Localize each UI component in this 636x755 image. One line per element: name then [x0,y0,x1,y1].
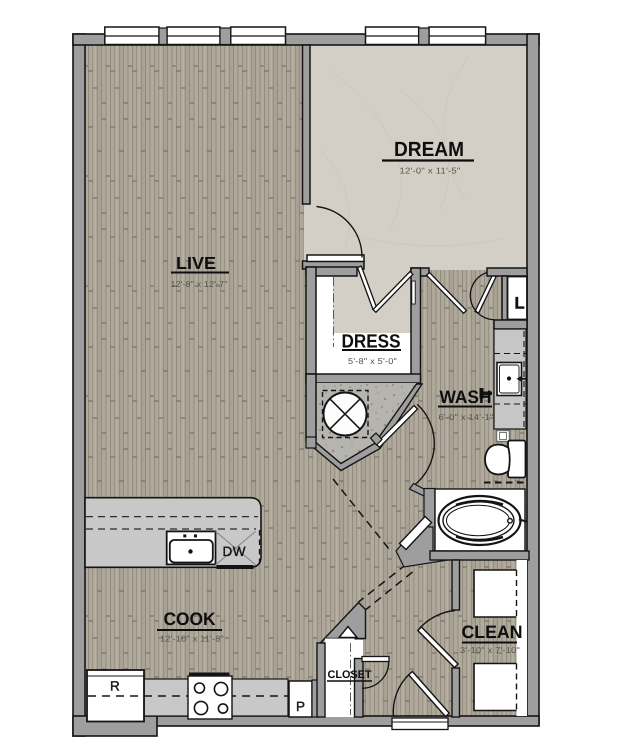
svg-text:12'-8" x 12'-7": 12'-8" x 12'-7" [171,279,228,289]
svg-text:6'-0" x 14'-1": 6'-0" x 14'-1" [439,412,494,422]
svg-text:LIVE: LIVE [176,253,216,273]
svg-text:5'-8" x 5'-0": 5'-8" x 5'-0" [348,356,397,366]
svg-text:COOK: COOK [164,609,216,629]
svg-text:12'-10" x 11'-8": 12'-10" x 11'-8" [160,634,224,644]
svg-text:R: R [110,679,120,694]
svg-text:CLOSET: CLOSET [328,669,372,681]
svg-text:L: L [515,295,525,313]
svg-text:P: P [296,699,305,714]
svg-text:WASH: WASH [440,387,492,407]
svg-text:12'-0" x 11'-5": 12'-0" x 11'-5" [400,166,461,176]
svg-text:DREAM: DREAM [394,138,464,161]
svg-text:DW: DW [223,544,247,559]
svg-text:CLEAN: CLEAN [462,622,523,642]
svg-text:3'-10" x 7'-10": 3'-10" x 7'-10" [460,645,520,655]
